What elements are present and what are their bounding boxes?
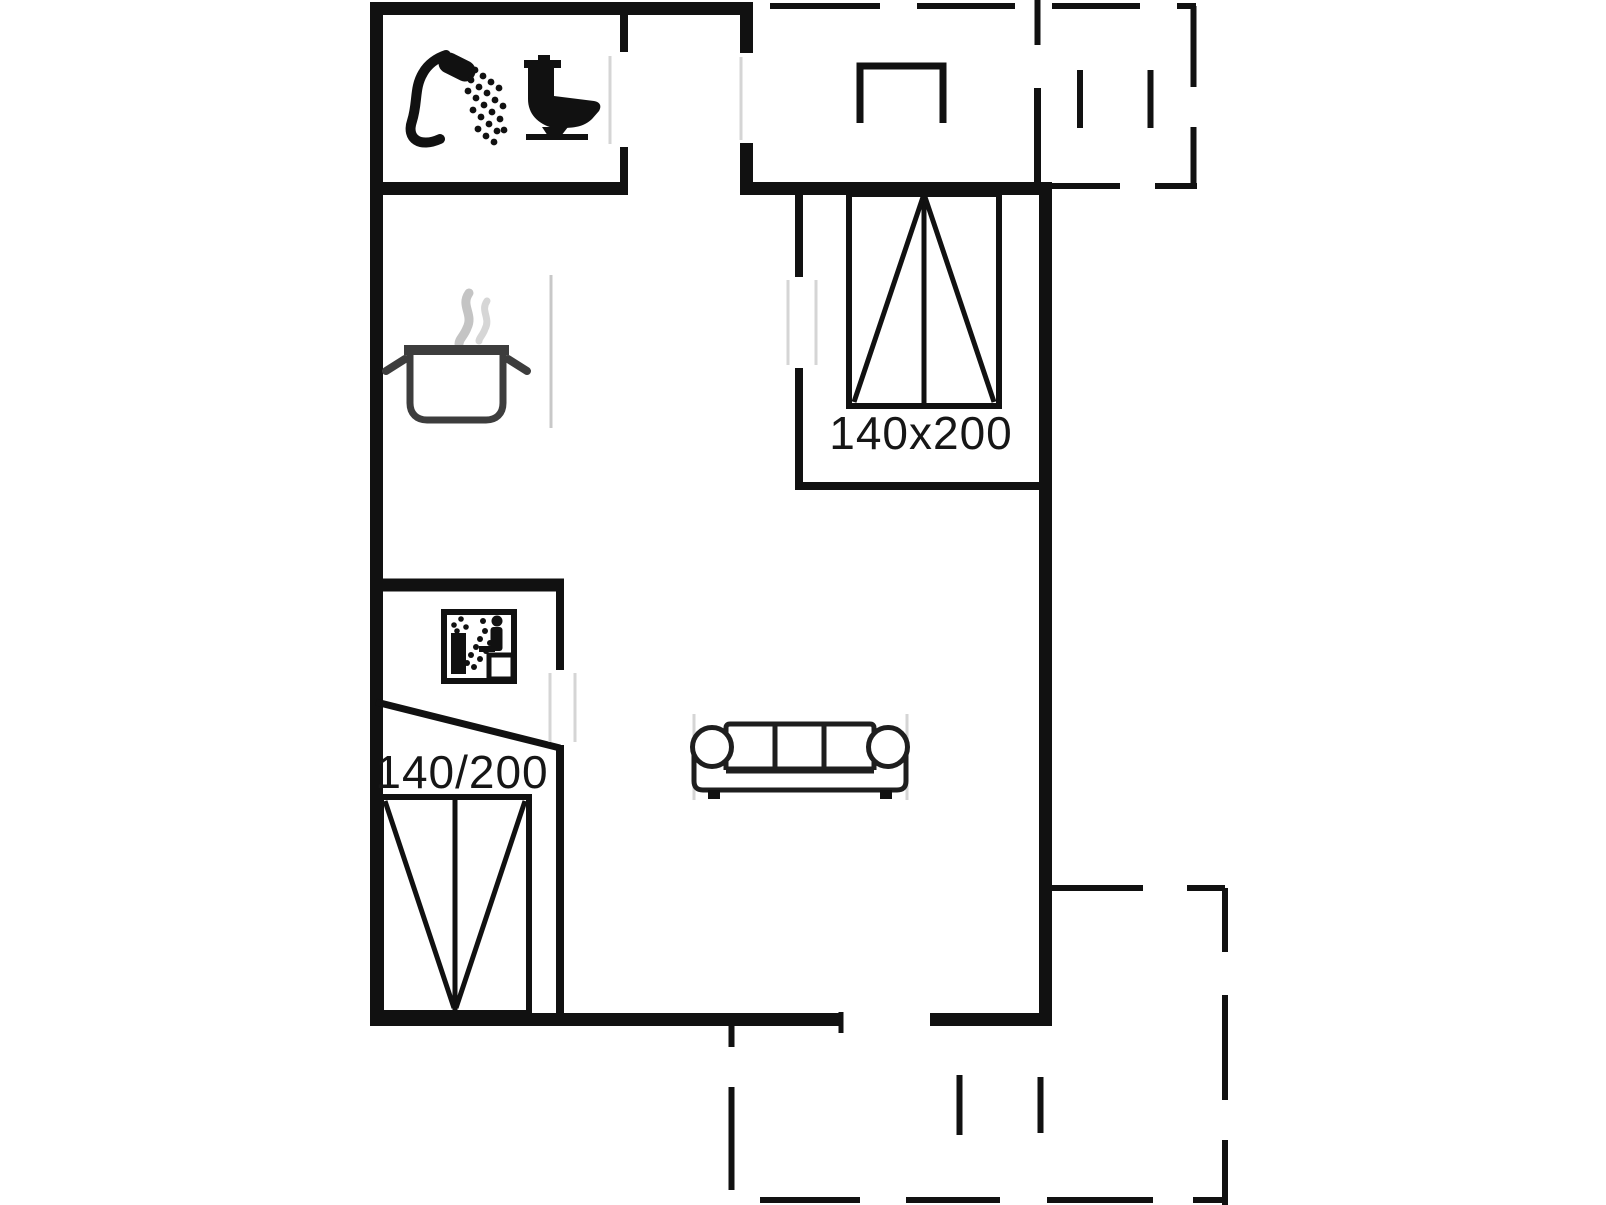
wall-alcove-diagonal [376,702,560,748]
interior-walls [376,4,1040,1033]
shower-head [449,63,465,71]
sofa-foot-right [880,790,892,799]
shower-icon [411,55,508,145]
floor-plan: 140x200 140/200 [0,0,1606,1205]
double-bed-icon [849,194,999,406]
bed-diagonal [385,801,454,1008]
toilet-base [526,134,588,140]
steam [479,301,487,341]
toilet-lid [524,60,561,68]
bed-diagonal [854,197,923,402]
sofa-back [726,724,874,770]
alcove-bed-size-label: 140/200 [375,749,548,795]
toilet-icon [524,55,600,140]
sauna-bucket [451,633,466,674]
sauna-icon [444,612,514,681]
sofa-arm-left [693,728,732,767]
bed-diagonal [456,801,525,1008]
pot-body [410,355,503,420]
toilet-body [528,68,600,128]
sauna-bench [489,655,513,679]
double-bed-icon [381,797,529,1013]
sauna-person-head [492,616,503,627]
pot-handle-left [386,359,405,371]
sauna-person-legs [479,646,495,652]
outer-walls [370,2,1052,1026]
cooking-pot-icon [386,293,527,420]
sofa-foot-left [708,790,720,799]
steam [459,293,469,344]
pot-handle-right [508,359,527,371]
porch-step-icon [860,66,943,123]
sofa-icon [693,724,908,799]
shower-spray-dots [465,67,508,146]
bed-diagonal [925,197,994,402]
floor-plan-svg [0,0,1606,1205]
bedroom-bed-size-label: 140x200 [829,410,1013,456]
sofa-arm-right [869,728,908,767]
